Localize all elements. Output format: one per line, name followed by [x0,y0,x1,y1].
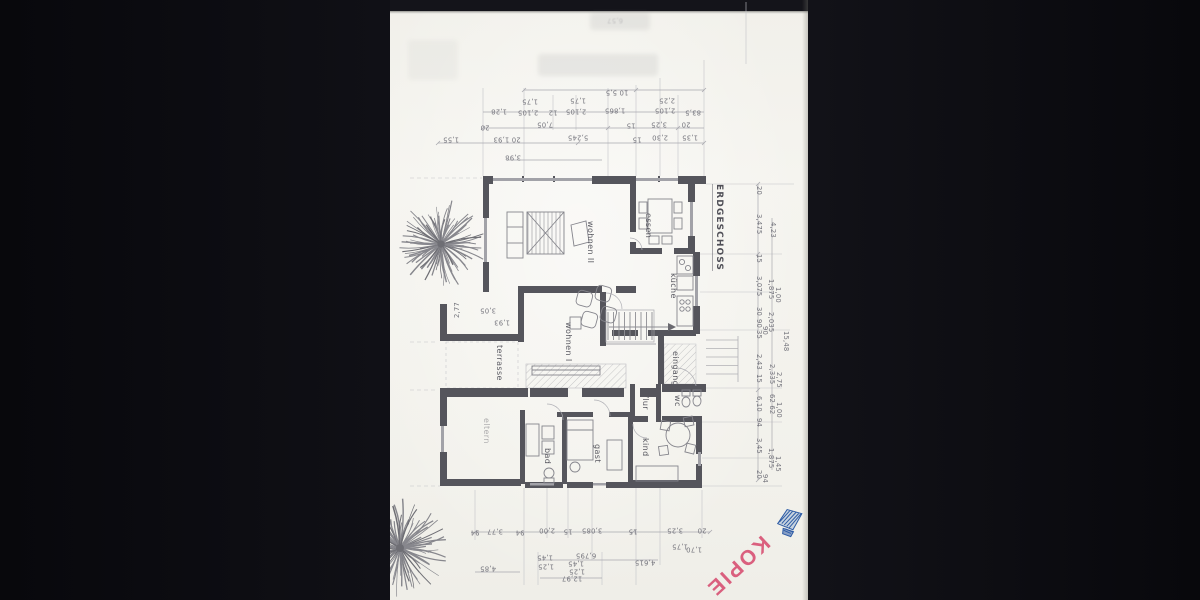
floor-title: ERDGESCHOSS [712,184,724,271]
dimension-label: 15 [626,122,635,129]
dimension-label: 2,43 [755,354,762,370]
room-label: eingang [671,351,679,386]
dimension-label: 20 [755,186,762,195]
dimension-label: 2,105 [518,109,538,116]
walls [440,176,706,488]
dimension-label: 1,45 [568,560,584,567]
dimension-label: 7,05 [537,121,553,128]
dimension-label: 3,25 [651,121,667,128]
scanner-bed-right [808,0,1200,600]
tree-symbol [390,499,446,597]
dimension-label: 3,05 [480,307,496,314]
dimension-label: 1,25 [538,563,554,570]
dimension-label: 62 62 [768,394,775,414]
dimension-label: 20 [697,527,706,534]
dimension-label: 83,5 [685,109,701,116]
dimension-label: 10 5,5 [606,89,629,96]
dimension-label: 4,23 [769,222,776,238]
scan-artifact-text: 6,57 [607,17,623,24]
dimension-label: 20 [480,124,489,131]
dimension-label: 1,75 [570,97,586,104]
dimension-label: 3,075 [755,276,762,296]
dimension-label: 94 [470,529,479,536]
dimension-label: 1,93 [494,319,510,326]
dimension-label: 1,28 [491,108,507,115]
dimension-label: 4,85 [480,565,496,572]
dimension-label: 15 [755,254,762,263]
dimension-label: 1,55 [443,136,459,143]
dimension-label: 2,105 [655,107,675,114]
staircase [606,310,676,344]
dimension-label: 5,245 [568,134,588,141]
floorplan-drawing [390,0,808,600]
dimension-label: 94 [515,529,524,536]
dimension-label: 2,30 [652,134,668,141]
scanner-bed-left [0,0,390,600]
room-label: terrasse [495,345,503,381]
dimension-label: 20 1,93 [493,136,520,143]
room-label: wohnen II [586,221,594,263]
dimension-label: 3,25 [667,527,683,534]
dimension-label: 2,77 [454,302,461,318]
dimension-label: 1,875 [767,448,774,468]
dimension-label: 1,00 [775,402,782,418]
room-label: eltern [482,418,490,444]
dimension-label: 3,98 [505,154,521,161]
dimension-label: 94 [761,474,768,483]
floorplan-paper: ERDGESCHOSS wohnen IIessenküchewohnen It… [390,0,808,600]
room-label: bad [543,448,551,464]
dimension-label: 15,48 [782,331,789,351]
dimension-label: 1,00 [774,287,781,303]
room-label: flur [641,395,649,410]
room-label: kind [641,438,649,457]
dimension-label: 2,25 [659,97,675,104]
room-label: wohnen I [564,322,572,362]
dimension-label: 3,45 [755,438,762,454]
dimension-label: 1,865 [605,107,625,114]
room-label: gast [593,444,601,463]
dimension-label: 15 [628,528,637,535]
dimension-label: 30 [755,307,762,316]
dimension-label: 90 [761,326,768,335]
dimension-label: 15 [755,374,762,383]
dimension-label: 20 [681,121,690,128]
dimension-label: 15 [632,136,641,143]
dimension-label: 4,615 [635,559,655,566]
dimension-label: 2,00 [539,527,555,534]
room-label: essen [644,213,652,238]
dimension-label: 1,35 [682,134,698,141]
dimension-label: 1,875 [767,279,774,299]
dimension-label: 1,25 [569,568,585,575]
dimension-label: 1,45 [774,456,781,472]
entrance-steps [706,336,738,382]
dimension-label: 6,10 [755,396,762,412]
dimension-label: 3,085 [582,527,602,534]
dimension-label: 1,70 [686,546,702,553]
scanned-floorplan-page: ERDGESCHOSS wohnen IIessenküchewohnen It… [0,0,1200,600]
dimension-label: 1,75 [522,98,538,105]
dimension-label: 2,335 [768,364,775,384]
dimension-label: 3,77 [487,528,503,535]
dimension-label: 15 [563,528,572,535]
dimension-label: 12 [548,109,557,116]
dimension-label: 12,97 [562,575,582,582]
room-label: wc [673,395,681,407]
dimension-label: 2,75 [775,372,782,388]
dimension-label: 6,795 [576,552,596,559]
room-label: küche [669,273,677,299]
dimension-label: 94 [755,418,762,427]
tree-symbol [400,201,484,286]
dimension-label: 2,105 [566,108,586,115]
dimension-label: 3,475 [755,214,762,234]
dimension-label: 1,45 [537,554,553,561]
